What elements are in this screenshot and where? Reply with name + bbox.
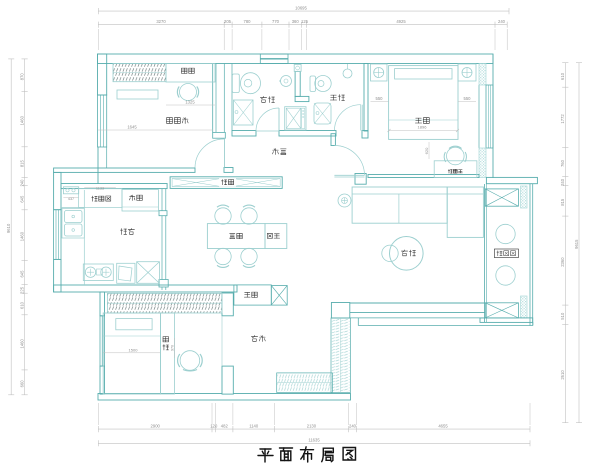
svg-text:645: 645 bbox=[19, 270, 24, 278]
svg-text:2610: 2610 bbox=[560, 370, 565, 380]
svg-text:1140: 1140 bbox=[249, 423, 259, 428]
svg-text:1896: 1896 bbox=[418, 125, 428, 130]
svg-text:780: 780 bbox=[244, 19, 252, 24]
svg-text:1133: 1133 bbox=[96, 186, 104, 190]
svg-text:1500: 1500 bbox=[129, 347, 139, 352]
svg-text:1460: 1460 bbox=[19, 231, 24, 241]
svg-text:1460: 1460 bbox=[19, 339, 24, 349]
svg-text:610: 610 bbox=[560, 72, 565, 80]
svg-text:240: 240 bbox=[560, 178, 565, 186]
svg-text:205: 205 bbox=[224, 19, 232, 24]
svg-text:225: 225 bbox=[19, 286, 24, 294]
svg-text:11635: 11635 bbox=[308, 438, 320, 443]
svg-text:2360: 2360 bbox=[560, 257, 565, 267]
svg-text:240: 240 bbox=[498, 19, 506, 24]
svg-text:10695: 10695 bbox=[295, 6, 307, 11]
svg-text:437: 437 bbox=[68, 197, 74, 201]
svg-text:870: 870 bbox=[19, 73, 24, 81]
svg-text:770: 770 bbox=[272, 19, 280, 24]
svg-text:240: 240 bbox=[19, 179, 24, 187]
svg-text:360: 360 bbox=[292, 19, 300, 24]
svg-text:1772: 1772 bbox=[560, 114, 565, 124]
svg-text:2900: 2900 bbox=[151, 423, 161, 428]
svg-text:550: 550 bbox=[376, 96, 384, 101]
svg-text:9610: 9610 bbox=[6, 223, 11, 233]
svg-text:550: 550 bbox=[464, 96, 472, 101]
svg-text:2130: 2130 bbox=[307, 423, 317, 428]
svg-text:970: 970 bbox=[171, 345, 175, 351]
svg-text:815: 815 bbox=[560, 198, 565, 206]
svg-text:1325: 1325 bbox=[185, 100, 195, 105]
svg-text:240: 240 bbox=[349, 423, 357, 428]
svg-text:645: 645 bbox=[19, 195, 24, 203]
svg-text:510: 510 bbox=[560, 312, 565, 320]
svg-text:1460: 1460 bbox=[19, 115, 24, 125]
svg-text:815: 815 bbox=[19, 159, 24, 167]
svg-text:4925: 4925 bbox=[396, 19, 406, 24]
svg-text:482: 482 bbox=[221, 423, 229, 428]
svg-text:760: 760 bbox=[560, 159, 565, 167]
svg-text:660: 660 bbox=[19, 380, 24, 388]
svg-text:9615: 9615 bbox=[574, 239, 579, 249]
svg-text:3270: 3270 bbox=[156, 19, 166, 24]
svg-text:1645: 1645 bbox=[127, 124, 137, 129]
svg-text:620: 620 bbox=[424, 147, 429, 154]
svg-text:610: 610 bbox=[19, 301, 24, 309]
svg-text:4655: 4655 bbox=[438, 423, 448, 428]
svg-text:120: 120 bbox=[210, 423, 218, 428]
svg-text:125: 125 bbox=[301, 19, 309, 24]
